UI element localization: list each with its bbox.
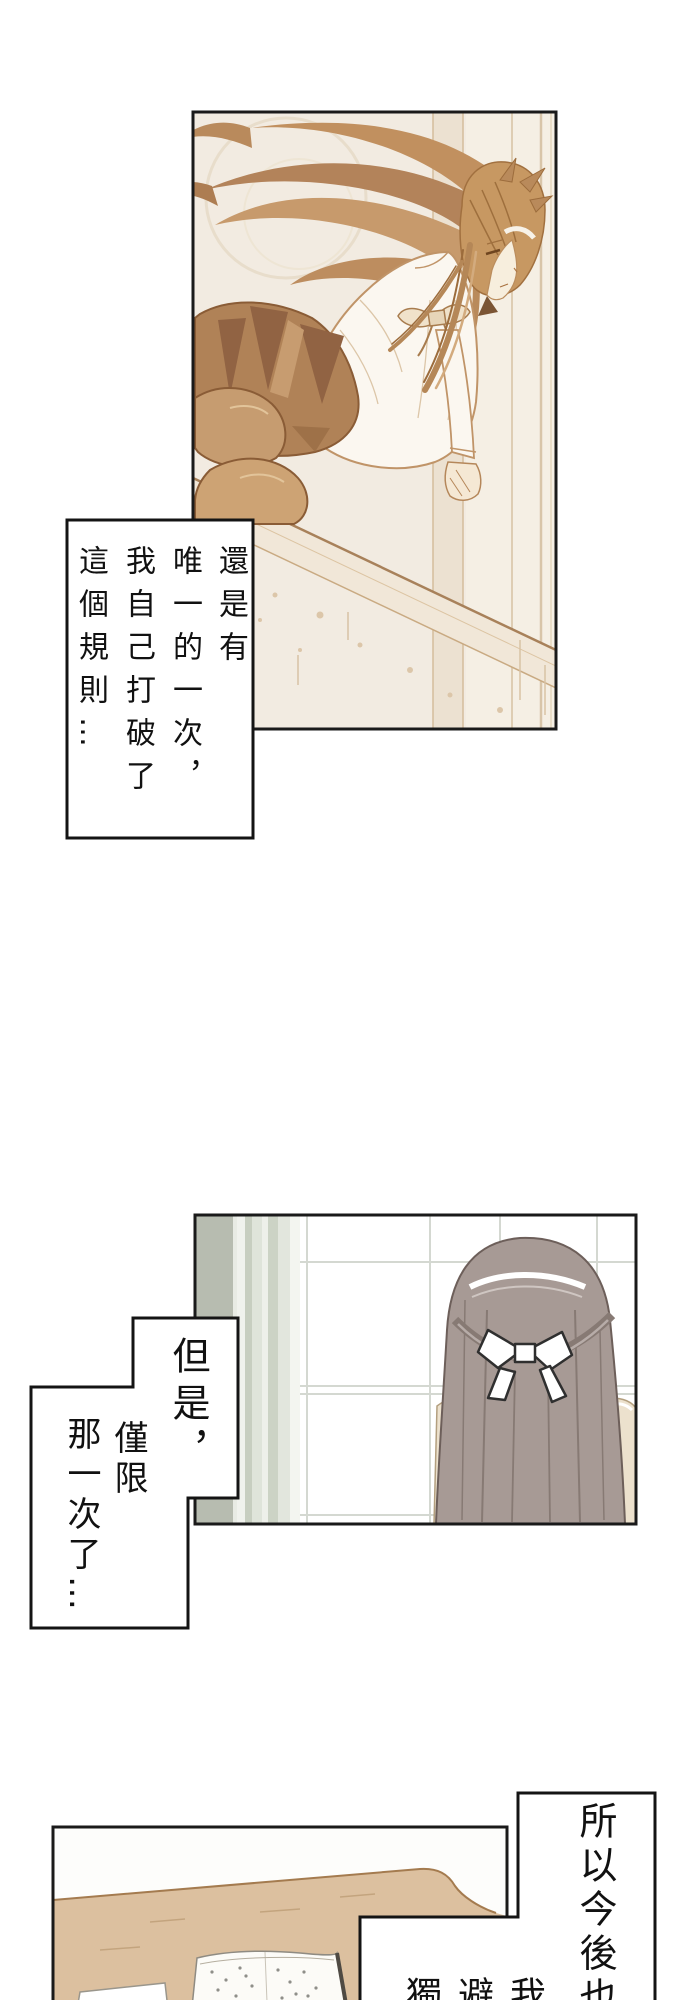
manga-page: 還是有 唯一的一次， 我自己打破了 這個規則… 但是， 僅限 那一次了… 所以今… — [0, 0, 690, 2000]
speech-box-1-column-4: 這個規則… — [75, 545, 105, 760]
speech-box-4-column-3: 獨 — [402, 1976, 438, 2000]
speech-box-2-column-3: 那一次了… — [64, 1416, 98, 1616]
speech-box-1-column-2: 唯一的一次， — [169, 545, 199, 803]
speech-box-3-column-1: 所以今後也 — [576, 1801, 614, 2000]
open-book — [190, 1951, 350, 2000]
girl2-hair — [436, 1238, 625, 1524]
speech-box-1-column-3: 我自己打破了 — [122, 545, 152, 803]
speech-box-4-column-1: 我 — [506, 1976, 542, 2000]
speech-box-4-column-2: 避 — [454, 1976, 490, 2000]
panel-2-artwork — [195, 1215, 636, 1524]
speech-box-2-column-1: 但是， — [169, 1336, 207, 1477]
speech-box-1-column-1: 還是有 — [215, 545, 245, 674]
page-artwork — [0, 0, 690, 2000]
speech-box-2-column-2: 僅限 — [111, 1420, 145, 1500]
